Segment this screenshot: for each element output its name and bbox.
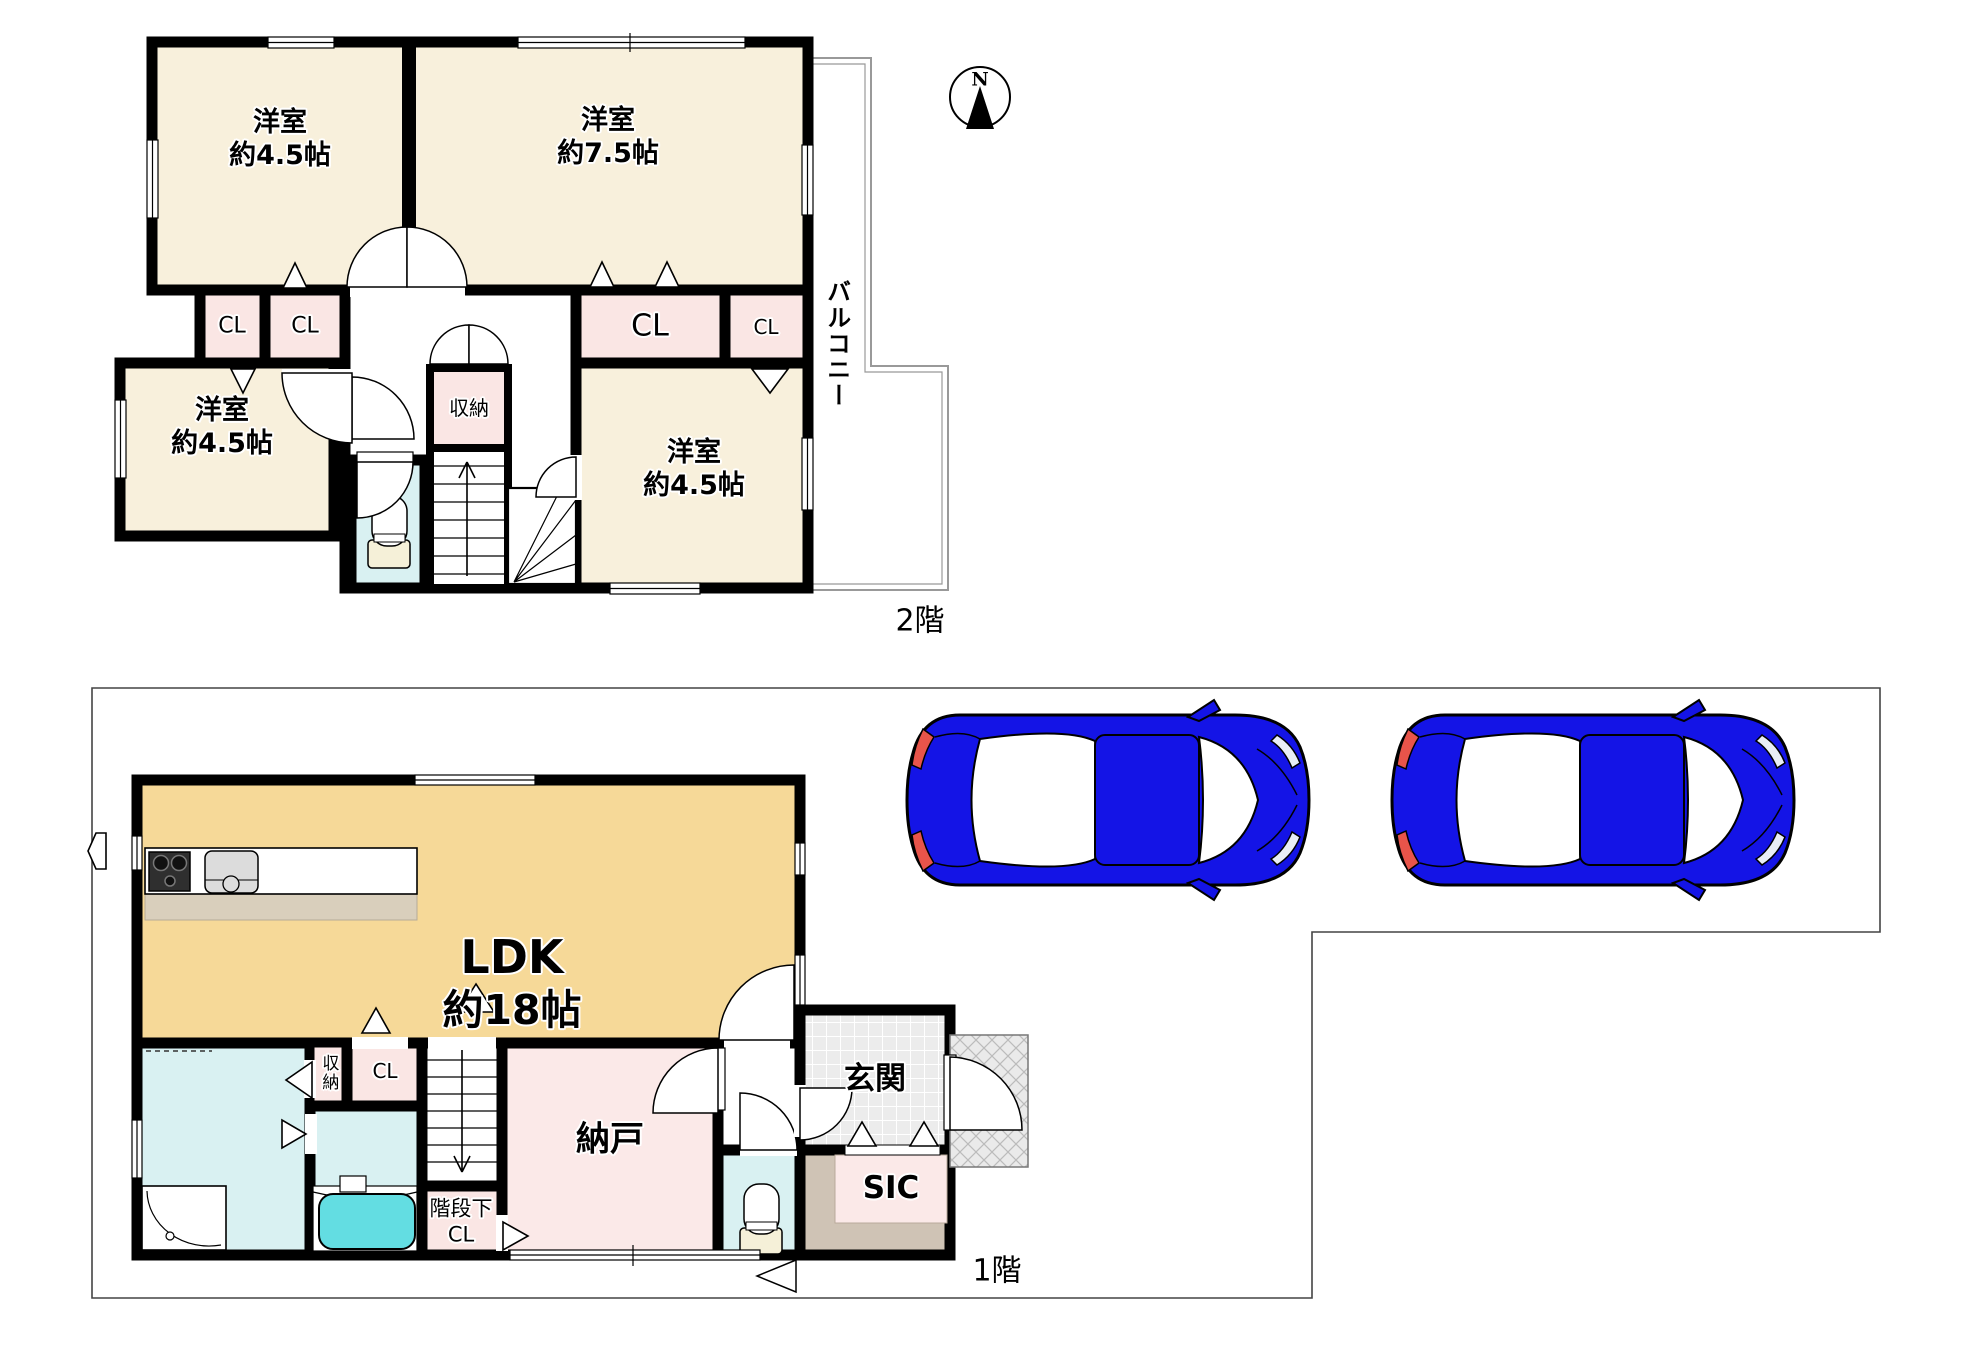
room-label-nando: 納戸: [576, 1119, 644, 1160]
room-label-ldk: LDK約18帖: [442, 929, 581, 1035]
room-label-yoshitsu-br: 洋室約4.5帖: [643, 437, 745, 503]
room-label-yoshitsu-tr: 洋室約7.5帖: [557, 105, 659, 171]
storage-label-2f: 収納: [449, 396, 489, 420]
room-label-sic: SIC: [863, 1170, 920, 1208]
floor1-label: 1階: [972, 1254, 1021, 1291]
closet-label-1f: CL: [372, 1059, 397, 1083]
bathtub-icon: [319, 1194, 415, 1249]
storage-label-1f: 収納: [318, 1054, 339, 1092]
bathroom-fixtures: [313, 1176, 417, 1251]
closet-label-cl-b: CL: [291, 314, 319, 341]
room-label-yoshitsu-tl: 洋室約4.5帖: [229, 107, 331, 173]
parked-car-1: [907, 700, 1309, 900]
floorplan-page: 洋室約4.5帖 洋室約7.5帖 洋室約4.5帖 洋室約4.5帖 CL CL CL…: [0, 0, 1970, 1360]
closet-label-cl-big: CL: [631, 309, 669, 346]
closet-label-cl-a: CL: [218, 314, 246, 341]
floorplan-drawing: [0, 0, 1970, 1360]
kitchen-counter: [145, 848, 417, 920]
closet-label-cl-small: CL: [753, 315, 778, 339]
floor2-label: 2階: [895, 604, 944, 641]
parked-car-2: [1392, 700, 1794, 900]
understairs-closet-label: 階段下CL: [430, 1196, 493, 1247]
balcony-label: バルコニー: [821, 279, 850, 409]
floor1-plan: [88, 688, 1880, 1298]
compass-n-label: N: [971, 68, 988, 91]
toilet-fixture-1f: [740, 1184, 782, 1254]
wall-top-rooms-divider: [402, 42, 416, 232]
room-label-genkan: 玄関: [844, 1061, 906, 1099]
room-label-yoshitsu-bl: 洋室約4.5帖: [171, 395, 273, 461]
